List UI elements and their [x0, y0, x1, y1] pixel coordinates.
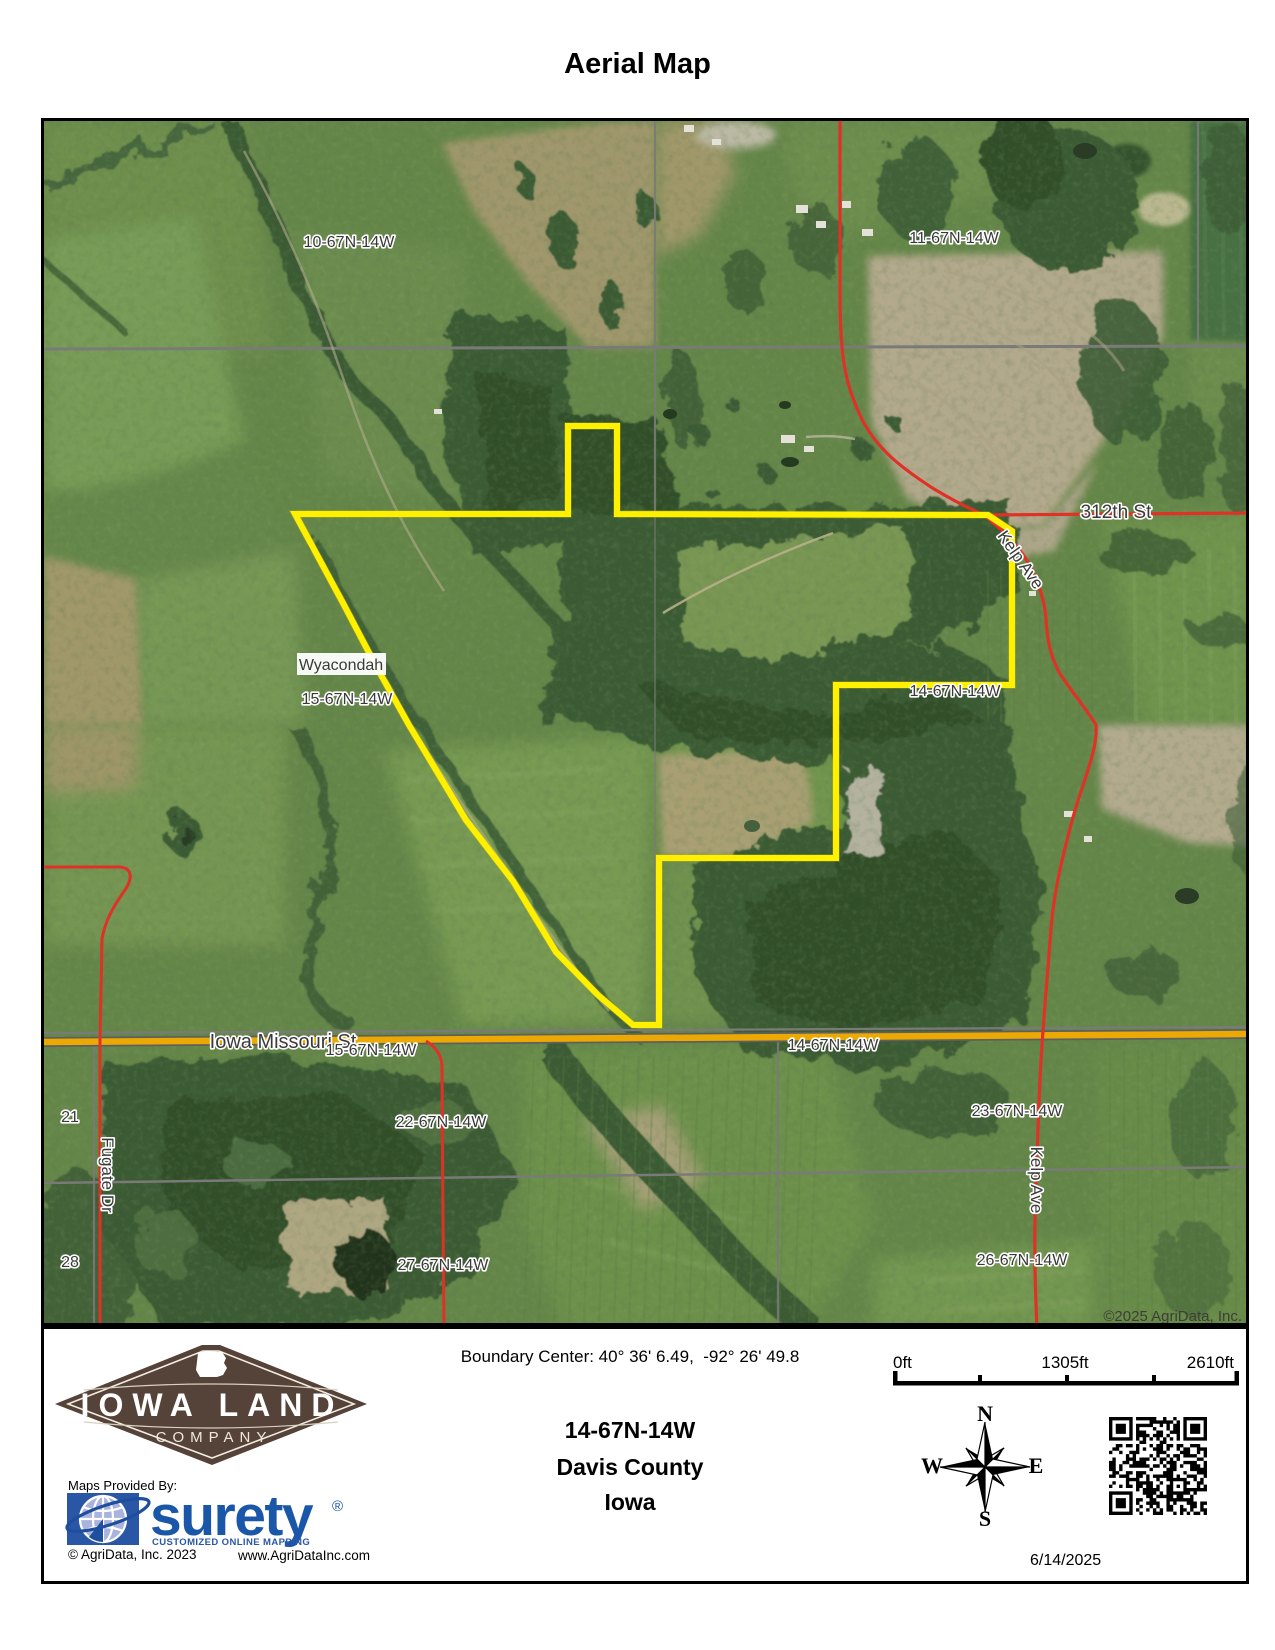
svg-text:©2025 AgriData, Inc.: ©2025 AgriData, Inc. [1103, 1308, 1242, 1325]
svg-text:23-67N-14W: 23-67N-14W [972, 1103, 1064, 1120]
svg-text:26-67N-14W: 26-67N-14W [977, 1252, 1069, 1269]
svg-text:28: 28 [61, 1254, 79, 1271]
svg-text:COMPANY: COMPANY [156, 1429, 273, 1446]
svg-text:S: S [979, 1506, 991, 1531]
svg-text:N: N [977, 1402, 993, 1426]
svg-text:15-67N-14W: 15-67N-14W [326, 1042, 418, 1059]
svg-text:312th St: 312th St [1081, 502, 1152, 523]
svg-text:22-67N-14W: 22-67N-14W [396, 1114, 488, 1131]
svg-text:E: E [1029, 1453, 1044, 1478]
svg-text:10-67N-14W: 10-67N-14W [304, 234, 396, 251]
svg-text:14-67N-14W: 14-67N-14W [910, 683, 1002, 700]
svg-text:27-67N-14W: 27-67N-14W [398, 1257, 490, 1274]
svg-text:21: 21 [61, 1109, 79, 1126]
svg-text:Kelp Ave: Kelp Ave [1027, 1147, 1046, 1214]
svg-text:Fugate Dr: Fugate Dr [98, 1137, 117, 1213]
svg-text:W: W [921, 1453, 943, 1478]
svg-text:IOWA LAND: IOWA LAND [81, 1387, 344, 1423]
svg-text:Wyacondah: Wyacondah [299, 657, 383, 674]
svg-text:11-67N-14W: 11-67N-14W [909, 230, 999, 247]
svg-text:15-67N-14W: 15-67N-14W [302, 691, 394, 708]
svg-text:14-67N-14W: 14-67N-14W [788, 1037, 880, 1054]
